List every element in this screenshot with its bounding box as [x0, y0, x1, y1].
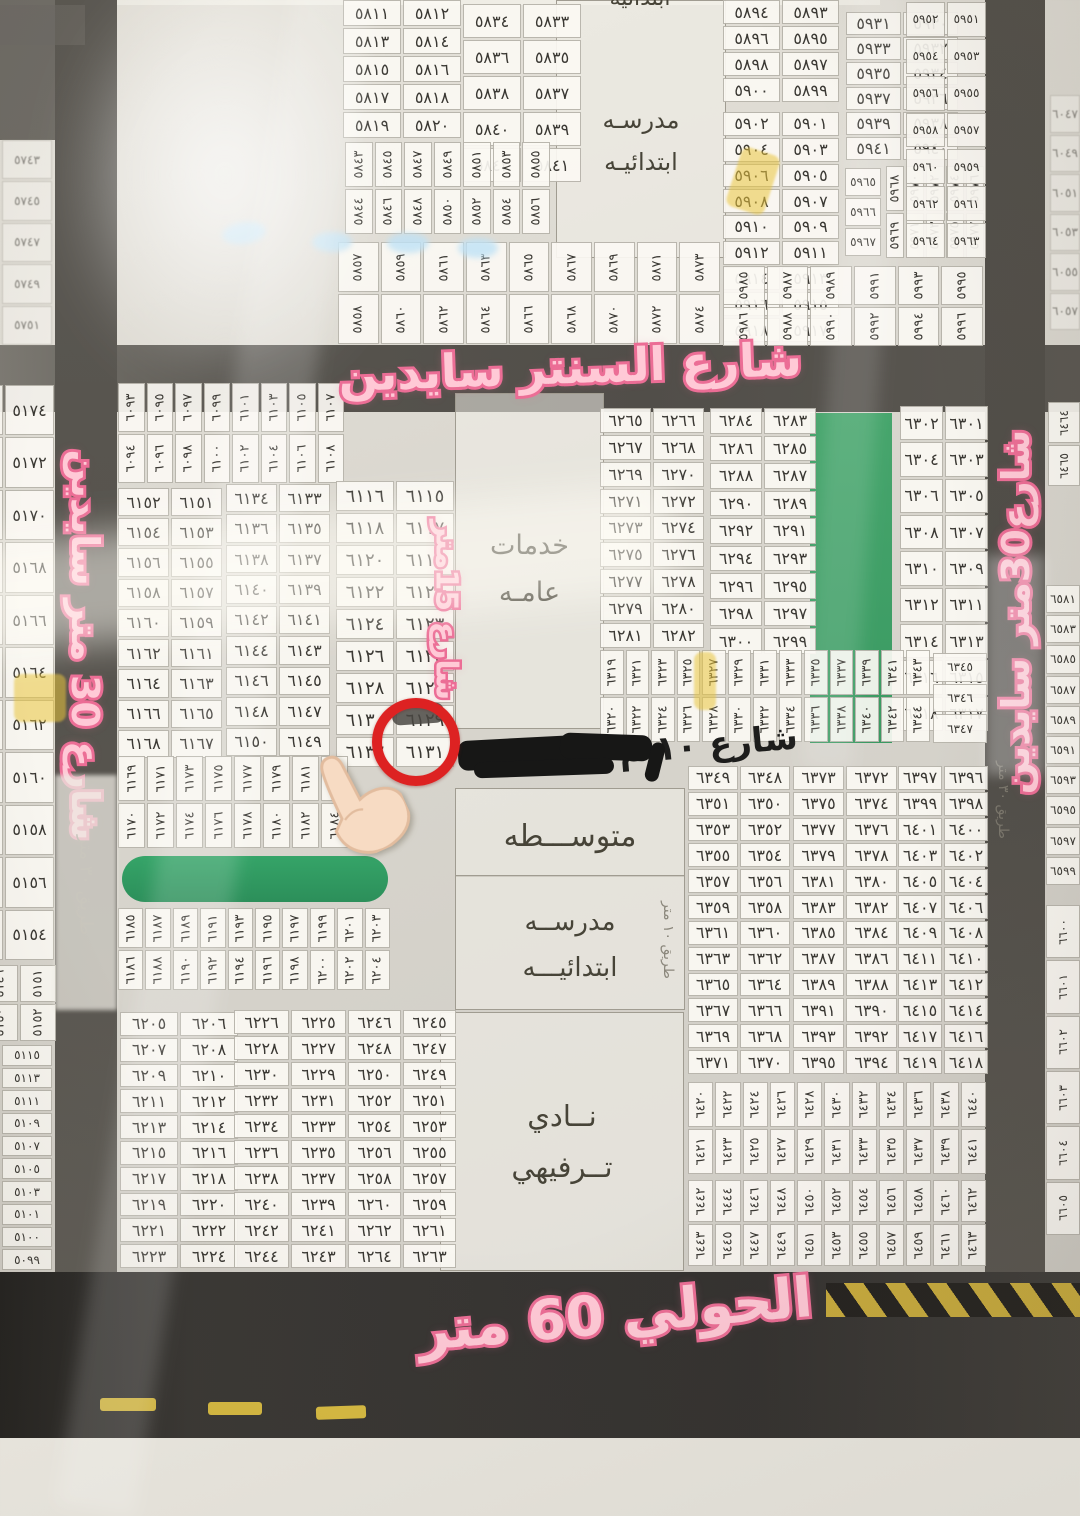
plot-cell: ٦٢٢٧	[291, 1036, 346, 1060]
road-marking	[100, 1398, 156, 1411]
plot-cell: ٥٨٥٥	[522, 142, 550, 187]
plot-cell: ٥١٠٣	[2, 1181, 52, 1202]
plot-cell: ٦٢١٦	[180, 1141, 238, 1165]
plot-cell: ٥٨٤٦	[375, 189, 403, 234]
plot-cell: ٦١٩٧	[282, 908, 307, 948]
plot-cell: ٦١٧١	[147, 756, 174, 801]
plot-cell: ٦٢٠٢	[337, 950, 362, 990]
facility-recreation-club: نــادي تــرفيهي	[440, 1012, 684, 1271]
plot-cell: ٦٢٨٧	[764, 463, 816, 489]
plot-cell: ٥١١١	[2, 1090, 52, 1111]
plot-cell: ٦٠٩٩	[204, 383, 231, 432]
plot-cell: ٥١٦٧	[0, 542, 3, 592]
plot-cell: ٦٢٠٨	[180, 1038, 238, 1062]
facility-public-services: خدمات عامـه	[455, 393, 604, 729]
plot-cell: ٦١٣٧	[279, 545, 330, 573]
plot-cell: ٦٢٧٤	[653, 516, 704, 541]
plot-cell: ٦٢٧٧	[600, 569, 651, 594]
plot-cell: ٥٨٢٠	[403, 112, 461, 138]
plot-cell: ٦٣٧٧	[793, 818, 844, 842]
plot-cell: ٦١٩٨	[282, 950, 307, 990]
plot-cell: ٦٢١٢	[180, 1089, 238, 1113]
plot-cell: ٥٨٦٥	[509, 242, 550, 292]
plot-cell: ٦٣٥٩	[688, 895, 738, 919]
plot-cell: ٥١٤٩	[0, 965, 18, 1002]
plot-cell: ٦٢٣٢	[234, 1088, 289, 1112]
plot-cell: ٦٣٤٣	[906, 650, 930, 695]
plot-cell: ٥٩٦٣	[947, 223, 986, 258]
plot-cell: ٦١٨٥	[118, 908, 143, 948]
plot-cell: ٥٩٣٩	[846, 112, 901, 135]
plot-cell: ٦٤٣٩	[933, 1129, 958, 1174]
plot-cell: ٦٣٤٦	[933, 684, 987, 713]
plot-cell: ٥٨٦٨	[551, 294, 592, 344]
plot-cell: ٥٨٤٣	[345, 142, 373, 187]
plot-cell: ٦٣٨٩	[793, 973, 844, 997]
plot-cell: ٦٢٦١	[403, 1218, 456, 1242]
plot-cell: ٥٨١٨	[403, 84, 461, 110]
plot-cell: ٦١٤٥	[279, 667, 330, 695]
plot-cell: ٦١٧٠	[118, 803, 145, 848]
plot-cell: ٦٣٦٣	[688, 947, 738, 971]
plot-cell: ٥٨٥٢	[463, 189, 491, 234]
plot-cell: ٦٣٠٤	[900, 442, 943, 476]
plot-cell: ٥٨٥٣	[493, 142, 521, 187]
plot-cell: ٥٩٦١	[947, 186, 986, 221]
plot-cell: ٦٤٦٣	[961, 1224, 986, 1266]
plot-cell: ٦٠٩٦	[147, 434, 174, 483]
plot-block-6185: ٦١٨٥٦١٨٧٦١٨٩٦١٩١٦١٩٣٦١٩٥٦١٩٧٦١٩٩٦٢٠١٦٢٠٣…	[118, 908, 390, 990]
plot-block-6442: ٦٤٤٢٦٤٤٤٦٤٤٦٦٤٤٨٦٤٥٠٦٤٥٢٦٤٥٤٦٤٥٦٦٤٥٨٦٤٦٠…	[688, 1180, 986, 1266]
plot-cell: ٦٠٤٩	[1050, 135, 1080, 173]
plot-cell: ٦٤٤٠	[961, 1082, 986, 1127]
plot-cell: ٥٩٦٠	[906, 149, 945, 184]
plot-block-5743: ٥٧٤٣٥٧٤٥٥٧٤٧٥٧٤٩٥٧٥١	[2, 140, 52, 345]
plot-cell: ٦١٢٤	[336, 609, 394, 639]
plot-cell: ٥٨١٩	[343, 112, 401, 138]
plot-cell: ٥١٦٣	[0, 647, 3, 697]
plot-cell: ٦٢٣٤	[234, 1114, 289, 1138]
plot-cell: ٦٤٤٨	[770, 1180, 795, 1222]
plot-cell: ٦٣٣٩	[855, 650, 879, 695]
plot-cell: ٦٣٢١	[626, 650, 650, 695]
plot-cell: ٦١٥٧	[171, 579, 222, 607]
plot-cell: ٦٣٥٥	[688, 843, 738, 867]
plot-cell: ٦٣٣٨	[830, 697, 854, 742]
plot-cell: ٦١٥١	[171, 488, 222, 516]
plot-cell: ٦٤٥٣	[824, 1224, 849, 1266]
plot-cell: ٦٢٣٧	[291, 1166, 346, 1190]
plot-cell: ٦٤٤٩	[770, 1224, 795, 1266]
plot-cell: ٦٦٠٢	[1046, 1016, 1080, 1069]
plot-cell: ٥١٥١	[20, 965, 56, 1002]
plot-cell: ٦٣٩١	[793, 998, 844, 1022]
plot-cell: ٦٢٤٨	[348, 1036, 401, 1060]
plot-cell: ٦٣٠٥	[945, 479, 988, 513]
plot-cell: ٥١٠١	[2, 1204, 52, 1225]
plot-cell: ٦٤٦٢	[961, 1180, 986, 1222]
plot-cell: ٥٨٦٧	[551, 242, 592, 292]
plot-cell: ٦١٧٥	[205, 756, 232, 801]
plot-cell: ٦٣٦٦	[740, 998, 790, 1022]
plot-cell: ٦١٤٣	[279, 636, 330, 664]
plot-cell: ٦٤٤٥	[715, 1224, 740, 1266]
plot-cell: ٥٩٥٩	[947, 149, 986, 184]
plot-cell: ٦١٥٤	[118, 518, 169, 546]
plot-cell: ٥٨٦٤	[466, 294, 507, 344]
plot-cell: ٥٨٦٦	[509, 294, 550, 344]
plot-cell: ٥٨١٣	[343, 28, 401, 54]
plot-cell: ٥٩٠١	[782, 112, 839, 136]
plot-cell: ٦١٧٨	[234, 803, 261, 848]
plot-cell: ٥٩٥٣	[947, 39, 986, 74]
plot-cell: ٦٤٤٢	[688, 1180, 713, 1222]
plot-cell: ٥١٥٨	[5, 805, 54, 855]
plot-cell: ٦٣٩٥	[793, 1050, 844, 1074]
plot-cell: ٦٣٠٣	[945, 442, 988, 476]
plot-cell: ٥٨٤٧	[404, 142, 432, 187]
plot-cell: ٦٤٥٨	[906, 1180, 931, 1222]
plot-cell: ٦١٥٠	[226, 728, 277, 756]
plot-cell: ٦٣٧١	[688, 1050, 738, 1074]
plot-cell: ٥٩٥٨	[906, 113, 945, 148]
plot-cell: ٦٤٣٣	[852, 1129, 877, 1174]
plot-cell: ٦٠٤٧	[1050, 95, 1080, 133]
plot-cell: ٥٩٣٥	[846, 62, 901, 85]
plot-cell: ٦١١٨	[336, 513, 394, 543]
plot-cell: ٦٢٣٦	[234, 1140, 289, 1164]
plot-cell: ٥٨٣٦	[463, 40, 521, 74]
plot-cell: ٦٢٠٤	[365, 950, 390, 990]
plot-cell: ٦٤٥١	[797, 1224, 822, 1266]
plot-cell: ٥٨٣٩	[523, 112, 581, 146]
plot-cell: ٦٢٥٣	[403, 1114, 456, 1138]
floor-edge	[0, 5, 85, 45]
plot-cell: ٥٨١٥	[343, 56, 401, 82]
plot-cell: ٦١٤٦	[226, 667, 277, 695]
plot-cell: ٦٥٩٥	[1046, 796, 1080, 824]
plot-cell: ٥١٠٧	[2, 1136, 52, 1157]
plot-cell: ٥٨٧٠	[594, 294, 635, 344]
plot-cell: ٦١٠٠	[204, 434, 231, 483]
plot-cell: ٥٩٦٧	[845, 228, 881, 256]
plot-cell: ٦٤١٤	[944, 998, 988, 1022]
plot-block-6581: ٦٥٨١٦٥٨٣٦٥٨٥٦٥٨٧٦٥٨٩٦٥٩١٦٥٩٣٦٥٩٥٦٥٩٧٦٥٩٩	[1046, 585, 1080, 885]
plot-cell: ٦١٦٤	[118, 669, 169, 697]
plot-cell: ٦٢١٨	[180, 1167, 238, 1191]
plot-cell: ٦٢٥٨	[348, 1166, 401, 1190]
plot-cell: ٥٨٣٤	[463, 4, 521, 38]
plot-block-6345: ٦٣٤٥٦٣٤٦٦٣٤٧	[933, 653, 987, 743]
plot-cell: ٥٩٥٢	[906, 2, 945, 37]
plot-cell: ٦٢٦٤	[348, 1244, 401, 1268]
plot-cell: ٦١٣٥	[279, 514, 330, 542]
plot-block-5857: ٥٨٥٧٥٨٥٩٥٨٦١٥٨٦٣٥٨٦٥٥٨٦٧٥٨٦٩٥٨٧١٥٨٧٣٥٨٥٨…	[338, 242, 720, 344]
plot-cell: ٦٣٩٠	[846, 998, 897, 1022]
plot-cell: ٦٣٦١	[688, 921, 738, 945]
plot-cell: ٦٢٨٠	[653, 596, 704, 621]
plot-cell: ٥١٦١	[0, 700, 3, 750]
plot-cell: ٦٣٨٥	[793, 921, 844, 945]
plot-cell: ٦٣٢٣	[651, 650, 675, 695]
plot-cell: ٦٢٢٢	[180, 1218, 238, 1242]
plot-cell: ٦٤٢١	[688, 1129, 713, 1174]
plot-cell: ٦٣٨٦	[846, 947, 897, 971]
plot-cell: ٥١٧٣	[0, 385, 3, 435]
plot-cell: ٦٣٩٦	[944, 766, 988, 790]
plot-block-6372: ٦٣٧٣٦٣٧٢٦٣٧٥٦٣٧٤٦٣٧٧٦٣٧٦٦٣٧٩٦٣٧٨٦٣٨١٦٣٨٠…	[793, 766, 897, 1074]
plot-cell: ٦٢٢٥	[291, 1010, 346, 1034]
plot-cell: ٥١٧٢	[5, 437, 54, 487]
plot-cell: ٥٧٤٣	[2, 140, 52, 179]
plot-cell: ٦٣٤٩	[688, 766, 738, 790]
plot-cell: ٦١٠٨	[318, 434, 345, 483]
plot-cell: ٥١٧١	[0, 437, 3, 487]
plot-cell: ٦٥٩٩	[1046, 857, 1080, 885]
plot-cell: ٥٠٩٩	[2, 1249, 52, 1270]
redacted-street-scribble	[474, 758, 614, 779]
plot-cell: ٥١٠٠	[2, 1227, 52, 1248]
plot-cell: ٦٤٠٥	[898, 869, 942, 893]
plot-cell: ٦٣٧٣	[793, 766, 844, 790]
plot-cell: ٦٢٧١	[600, 489, 651, 514]
road-marking-hazard-stripes	[826, 1283, 1080, 1317]
plot-block-5811: ٥٨١١٥٨١٢٥٨١٣٥٨١٤٥٨١٥٥٨١٦٥٨١٧٥٨١٨٥٨١٩٥٨٢٠	[343, 0, 461, 138]
plot-cell: ٥٩٤١	[846, 137, 901, 160]
plot-cell: ٥٩٣١	[846, 12, 901, 35]
plot-cell: ٥٨٥٦	[522, 189, 550, 234]
plot-cell: ٦٣٦٤	[740, 973, 790, 997]
plot-cell: ٥١٥٤	[5, 910, 54, 960]
plot-cell: ٦٢٥٦	[348, 1140, 401, 1164]
plot-cell: ٦٢٢٨	[234, 1036, 289, 1060]
facility-label: خدمات عامـه	[456, 522, 603, 617]
plot-cell: ٥٩٥١	[947, 2, 986, 37]
plot-cell: ٥١٥٦	[5, 857, 54, 907]
plot-cell: ٦٤٦٠	[933, 1180, 958, 1222]
plot-cell: ٥٨٩٣	[782, 0, 839, 24]
plot-block-6133: ٦١٣٤٦١٣٣٦١٣٦٦١٣٥٦١٣٨٦١٣٧٦١٤٠٦١٣٩٦١٤٢٦١٤١…	[226, 484, 330, 756]
plot-cell: ٥٩٨٥	[723, 266, 765, 305]
plot-cell: ٦٤٣٧	[906, 1129, 931, 1174]
plot-cell: ٦٢٢١	[120, 1218, 178, 1242]
plot-cell: ٦٤٠٨	[944, 921, 988, 945]
plot-cell: ٦١٠١	[232, 383, 259, 432]
plot-cell: ٦٤٢٧	[770, 1129, 795, 1174]
plot-cell: ٦٣٠٩	[945, 551, 988, 585]
plot-cell: ٦٢٤٥	[403, 1010, 456, 1034]
plot-cell: ٦٣١٢	[900, 588, 943, 622]
plot-cell: ٦٤٥٠	[797, 1180, 822, 1222]
plot-cell: ٦٢٧٣	[600, 516, 651, 541]
plot-cell: ٦٤٢٣	[715, 1129, 740, 1174]
plot-cell: ٦٤٤٦	[743, 1180, 768, 1222]
plot-cell: ٥٩١٢	[723, 241, 780, 265]
plot-cell: ٦٢٩٥	[764, 573, 816, 599]
plot-cell: ٦٢١٠	[180, 1064, 238, 1088]
plot-cell: ٦٢٠٧	[120, 1038, 178, 1062]
plot-cell: ٦٢١٣	[120, 1115, 178, 1139]
plot-cell: ٦٢٥٠	[348, 1062, 401, 1086]
plot-cell: ٦١٥٢	[118, 488, 169, 516]
plot-cell: ٦٣١١	[945, 588, 988, 622]
plot-cell: ٦٣٥٠	[740, 792, 790, 816]
plot-cell: ٦٢٩٣	[764, 546, 816, 572]
plot-cell: ٦٢٧٢	[653, 489, 704, 514]
handwritten-road-label-left: طريق ٣٠ متر	[76, 795, 97, 975]
plot-cell: ٦٤٠٤	[944, 869, 988, 893]
plot-cell: ٦٢١١	[120, 1089, 178, 1113]
plot-cell: ٦١٩٦	[255, 950, 280, 990]
plot-cell: ٦١٧٧	[234, 756, 261, 801]
plot-cell: ٦٠٩٤	[118, 434, 145, 483]
plot-cell: ٦٤٣٨	[933, 1082, 958, 1127]
plot-cell: ٦٣٧٢	[846, 766, 897, 790]
plot-cell: ٦١٥٦	[118, 548, 169, 576]
plot-cell: ٦١٤٤	[226, 636, 277, 664]
plot-block-6225: ٦٢٢٦٦٢٢٥٦٢٢٨٦٢٢٧٦٢٣٠٦٢٢٩٦٢٣٢٦٢٣١٦٢٣٤٦٢٣٣…	[234, 1010, 346, 1268]
road-marking	[208, 1402, 262, 1415]
plot-cell: ٦٦٠١	[1046, 960, 1080, 1013]
subdivision-map-photo: مدرسـه ابتدائيـه خدمات عامـه متوســـطه م…	[0, 0, 1080, 1438]
plot-cell: ٦٣٨١	[793, 869, 844, 893]
plot-cell: ٥٩٩١	[854, 266, 896, 305]
plot-cell: ٦٢٩١	[764, 518, 816, 544]
plot-cell: ٦٣٣٣	[779, 650, 803, 695]
road-marking	[316, 1405, 366, 1420]
facility-label: نــادي تــرفيهي	[441, 1091, 683, 1193]
plot-cell: ٦٣٣١	[753, 650, 777, 695]
plot-cell: ٦٢٣٥	[291, 1140, 346, 1164]
plot-cell: ٦٢٤٤	[234, 1244, 289, 1268]
plot-cell: ٦١٩١	[200, 908, 225, 948]
plot-cell: ٦١٤٨	[226, 697, 277, 725]
plot-cell: ٦٣٦٧	[688, 998, 738, 1022]
plot-cell: ٦٦٠٥	[1046, 1182, 1080, 1235]
plot-block-6205: ٦٢٠٥٦٢٠٦٦٢٠٧٦٢٠٨٦٢٠٩٦٢١٠٦٢١١٦٢١٢٦٢١٣٦٢١٤…	[120, 1012, 238, 1268]
highlight-mark	[694, 652, 716, 710]
plot-cell: ٦٢٦٨	[653, 435, 704, 460]
plot-cell: ٦٤٢٠	[688, 1082, 713, 1127]
plot-cell: ٦٤١٠	[944, 947, 988, 971]
plot-cell: ٥٨٥٠	[434, 189, 462, 234]
plot-cell: ٦٠٥٥	[1050, 253, 1080, 291]
plot-cell: ٥٩٥٤	[906, 39, 945, 74]
plot-cell: ٦١٤٢	[226, 606, 277, 634]
plot-block-6151: ٦١٥٢٦١٥١٦١٥٤٦١٥٣٦١٥٦٦١٥٥٦١٥٨٦١٥٧٦١٦٠٦١٥٩…	[118, 488, 222, 758]
plot-cell: ٦٣٨٠	[846, 869, 897, 893]
plot-cell: ٦٤٤٧	[743, 1224, 768, 1266]
plot-cell: ٥٨٦٢	[423, 294, 464, 344]
facility-elementary-school-top: مدرسـه ابتدائيـه	[556, 0, 726, 258]
plot-cell: ٦٤٠٣	[898, 843, 942, 867]
glass-reflection	[312, 232, 352, 252]
plot-cell: ٦١٣٦	[226, 514, 277, 542]
plot-cell: ٦٢٦٥	[600, 408, 651, 433]
plot-cell: ٦٣٢٩	[728, 650, 752, 695]
glass-reflection	[458, 238, 498, 258]
handwritten-road-label-inner: طريق ١٠ متر	[660, 901, 676, 979]
plot-cell: ٥٨٣٧	[523, 76, 581, 110]
plot-cell: ٥٨٥١	[463, 142, 491, 187]
plot-cell: ٦٠٩٥	[147, 383, 174, 432]
plot-cell: ٦٢٨٣	[764, 408, 816, 434]
plot-cell: ٦٣٥٧	[688, 869, 738, 893]
plot-cell: ٥١٦٩	[0, 490, 3, 540]
plot-block-6283: ٦٢٨٤٦٢٨٣٦٢٨٦٦٢٨٥٦٢٨٨٦٢٨٧٦٢٩٠٦٢٨٩٦٢٩٢٦٢٩١…	[710, 408, 816, 654]
plot-cell: ٦٣٤٤	[906, 697, 930, 742]
plot-cell: ٦٤٢٥	[743, 1129, 768, 1174]
plot-cell: ٦١٣٨	[226, 545, 277, 573]
plot-cell: ٦٣٨٤	[846, 921, 897, 945]
plot-cell: ٦٣٤٧	[933, 714, 987, 743]
plot-block-5154: ٥١٧٣٥١٧٤٥١٧١٥١٧٢٥١٦٩٥١٧٠٥١٦٧٥١٦٨٥١٦٥٥١٦٦…	[0, 385, 54, 960]
plot-cell: ٥٩٨٧	[767, 266, 809, 305]
plot-cell: ٦١٧٢	[147, 803, 174, 848]
facility-middle-school: متوســـطه	[455, 788, 685, 877]
plot-cell: ٦٢٧٥	[600, 542, 651, 567]
plot-cell: ٦٤١٧	[898, 1024, 942, 1048]
plot-cell: ٥٨٧١	[637, 242, 678, 292]
plot-cell: ٦٣٥٤	[740, 843, 790, 867]
plot-cell: ٦٢٩٧	[764, 601, 816, 627]
plot-cell: ٦١٦٩	[118, 756, 145, 801]
plot-cell: ٦٣٣٦	[804, 697, 828, 742]
plot-cell: ٦٠٩٧	[175, 383, 202, 432]
plot-cell: ٥١٧٠	[5, 490, 54, 540]
plot-cell: ٦٣٤٥	[933, 653, 987, 682]
plot-cell: ٦٢٧٠	[653, 462, 704, 487]
plot-cell: ٦١٢٦	[336, 641, 394, 671]
plot-cell: ٦٤٢٢	[715, 1082, 740, 1127]
plot-cell: ٦٢٨٥	[764, 436, 816, 462]
plot-cell: ٦١٩٢	[200, 950, 225, 990]
plot-cell: ٥١٦٨	[5, 542, 54, 592]
plot-cell: ٦٢٦٣	[403, 1244, 456, 1268]
plot-cell: ٦٢٧٩	[600, 596, 651, 621]
facility-label: مدرسـه ابتدائيـه	[557, 99, 725, 183]
glass-reflection	[387, 233, 429, 253]
plot-cell: ٦٢١٤	[180, 1115, 238, 1139]
plot-cell: ٦٢٥٩	[403, 1192, 456, 1216]
plot-cell: ٥١١٥	[2, 1045, 52, 1066]
plot-cell: ٥٧٤٩	[2, 264, 52, 303]
plot-cell: ٦٢١٩	[120, 1193, 178, 1217]
plot-cell: ٦١٥٨	[118, 579, 169, 607]
plot-cell: ٦٤٣٢	[852, 1082, 877, 1127]
plot-cell: ٦٣٩٧	[898, 766, 942, 790]
plot-cell: ٥٩٠٥	[782, 164, 839, 188]
plot-cell: ٦٤٥٤	[852, 1180, 877, 1222]
plot-cell: ٦٢٠٩	[120, 1064, 178, 1088]
plot-cell: ٦٣٧٩	[793, 843, 844, 867]
plot-cell: ٦١٧٦	[205, 803, 232, 848]
plot-cell: ٥٩٣٣	[846, 37, 901, 60]
plot-cell: ٥٩٦٢	[906, 186, 945, 221]
plot-cell: ٦٤١٣	[898, 973, 942, 997]
plot-cell: ٦٤١٥	[898, 998, 942, 1022]
plot-cell: ٦٢١٥	[120, 1141, 178, 1165]
plot-cell: ٥٧٥١	[2, 306, 52, 345]
plot-cell: ٦٢٥٧	[403, 1166, 456, 1190]
plot-cell: ٦٣٠٨	[900, 515, 943, 549]
plot-cell: ٦٣٨٧	[793, 947, 844, 971]
plot-cell: ٦٣٩٢	[846, 1024, 897, 1048]
plot-cell: ٦١٦١	[171, 639, 222, 667]
plot-cell: ٥٩٩٥	[941, 266, 983, 305]
plot-cell: ٦١٠٣	[261, 383, 288, 432]
plot-cell: ٦١١٦	[336, 481, 394, 511]
